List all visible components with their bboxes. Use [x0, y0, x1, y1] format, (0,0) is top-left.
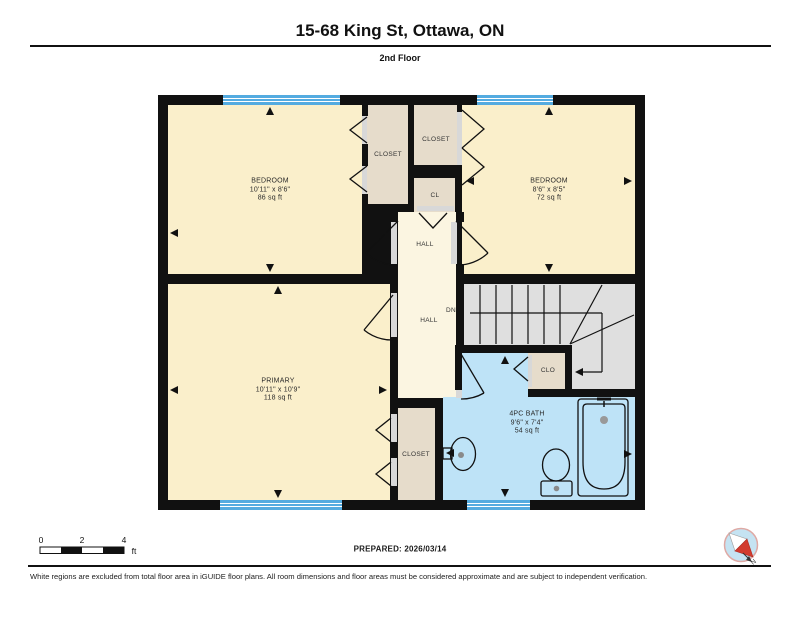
- room-clo-label: CLO: [541, 367, 555, 376]
- room-bedroom2-label: BEDROOM 8'6" x 8'5" 72 sq ft: [530, 177, 568, 203]
- room-name: BEDROOM: [250, 177, 290, 186]
- room-closet2-label: CLOSET: [422, 136, 450, 145]
- room-name: PRIMARY: [256, 377, 301, 386]
- stairs-dn-label: DN: [446, 307, 456, 316]
- room-hall-upper-label: HALL: [416, 241, 433, 250]
- room-bedroom1-label: BEDROOM 10'11" x 8'6" 86 sq ft: [250, 177, 290, 203]
- room-name: 4PC BATH: [509, 410, 544, 419]
- prepared-date: PREPARED: 2026/03/14: [354, 545, 447, 554]
- room-area: 72 sq ft: [530, 194, 568, 203]
- floor-plan-drawing: N: [0, 0, 800, 618]
- footer-separator: [28, 565, 771, 567]
- scale-tick-4: 4: [122, 535, 127, 545]
- scale-tick-2: 2: [80, 535, 85, 545]
- disclaimer-text: White regions are excluded from total fl…: [30, 572, 647, 581]
- compass: N: [725, 529, 759, 567]
- room-name: BEDROOM: [530, 177, 568, 186]
- floor-plan-page: 15-68 King St, Ottawa, ON 2nd Floor: [0, 0, 800, 618]
- room-closet3-label: CLOSET: [402, 451, 430, 460]
- room-dimensions: 10'11" x 10'9": [256, 386, 301, 395]
- room-dimensions: 10'11" x 8'6": [250, 186, 290, 195]
- scale-bar: [40, 547, 124, 554]
- scale-tick-0: 0: [39, 535, 44, 545]
- room-bath-label: 4PC BATH 9'6" x 7'4" 54 sq ft: [509, 410, 544, 436]
- room-area: 54 sq ft: [509, 427, 544, 436]
- room-area: 86 sq ft: [250, 194, 290, 203]
- room-hall-lower-label: HALL: [420, 317, 437, 326]
- scale-unit: ft: [132, 546, 137, 556]
- room-floors: [168, 105, 635, 500]
- room-closet1-label: CLOSET: [374, 151, 402, 160]
- room-cl-label: CL: [431, 192, 440, 201]
- room-primary-label: PRIMARY 10'11" x 10'9" 118 sq ft: [256, 377, 301, 403]
- room-dimensions: 9'6" x 7'4": [509, 419, 544, 428]
- room-area: 118 sq ft: [256, 394, 301, 403]
- room-dimensions: 8'6" x 8'5": [530, 186, 568, 195]
